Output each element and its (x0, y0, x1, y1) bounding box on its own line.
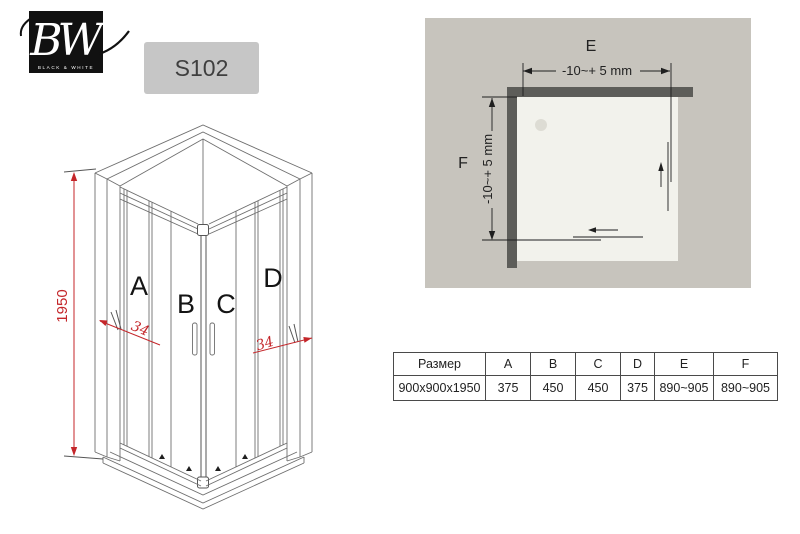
panel-label-c: C (216, 289, 236, 319)
header-d: D (621, 353, 655, 376)
bottom-tray-lines (103, 443, 304, 509)
top-frame-lines (95, 125, 312, 234)
plan-wall-left (507, 87, 517, 268)
handle-right (210, 323, 215, 355)
header-f: F (714, 353, 778, 376)
spec-table: Размер A B C D E F 900x900x1950 375 450 … (393, 352, 778, 401)
drain-circle (535, 119, 547, 131)
top-view-drawing: E -10~+ 5 mm F -10~+ 5 mm (420, 12, 760, 297)
cell-f: 890~905 (714, 376, 778, 401)
model-badge-label: S102 (175, 55, 229, 82)
cell-d: 375 (621, 376, 655, 401)
left-wall-profile (95, 173, 120, 461)
panel-label-a: A (130, 271, 148, 301)
header-b: B (531, 353, 576, 376)
cell-b: 450 (531, 376, 576, 401)
header-c: C (576, 353, 621, 376)
brand-logo-graphic: BW BLACK & WHITE (15, 4, 145, 94)
roller-marks (159, 454, 248, 471)
wall-adjust-right-label: 34 (254, 334, 276, 355)
dimension-e-tolerance: -10~+ 5 mm (562, 63, 632, 78)
plan-wall-top (507, 87, 693, 97)
wall-adjust-left-label: 34 (129, 318, 152, 340)
corner-post (198, 225, 209, 489)
logo-script-text: BW (29, 15, 106, 66)
header-e: E (655, 353, 714, 376)
brand-logo: BW BLACK & WHITE (15, 4, 145, 94)
cell-c: 450 (576, 376, 621, 401)
wall-adjust-left: 34 (99, 310, 160, 345)
shower-spec-sheet: BW BLACK & WHITE S102 (0, 0, 800, 534)
handle-left (193, 323, 198, 355)
logo-flourish-left (21, 19, 30, 36)
spec-table-header-row: Размер A B C D E F (394, 353, 778, 376)
door-handles (193, 323, 215, 355)
height-dimension: 1950 (55, 169, 103, 459)
dimension-e-label: E (586, 38, 597, 55)
logo-sub-text: BLACK & WHITE (38, 65, 94, 70)
header-size: Размер (394, 353, 486, 376)
panel-label-b: B (177, 289, 195, 319)
model-badge: S102 (144, 42, 259, 94)
cell-size: 900x900x1950 (394, 376, 486, 401)
front-view-drawing: A B C D 1950 34 34 (55, 115, 345, 525)
height-dimension-label: 1950 (55, 289, 71, 322)
panel-label-d: D (263, 263, 283, 293)
header-a: A (486, 353, 531, 376)
logo-flourish-tail (99, 31, 129, 54)
cell-e: 890~905 (655, 376, 714, 401)
dimension-f-tolerance: -10~+ 5 mm (480, 134, 495, 204)
glass-panel-lines-right (236, 189, 283, 467)
wall-adjust-right: 34 (253, 324, 312, 354)
spec-table-data-row: 900x900x1950 375 450 450 375 890~905 890… (394, 376, 778, 401)
cell-a: 375 (486, 376, 531, 401)
dimension-f-label: F (458, 155, 468, 172)
right-wall-profile (287, 173, 312, 461)
